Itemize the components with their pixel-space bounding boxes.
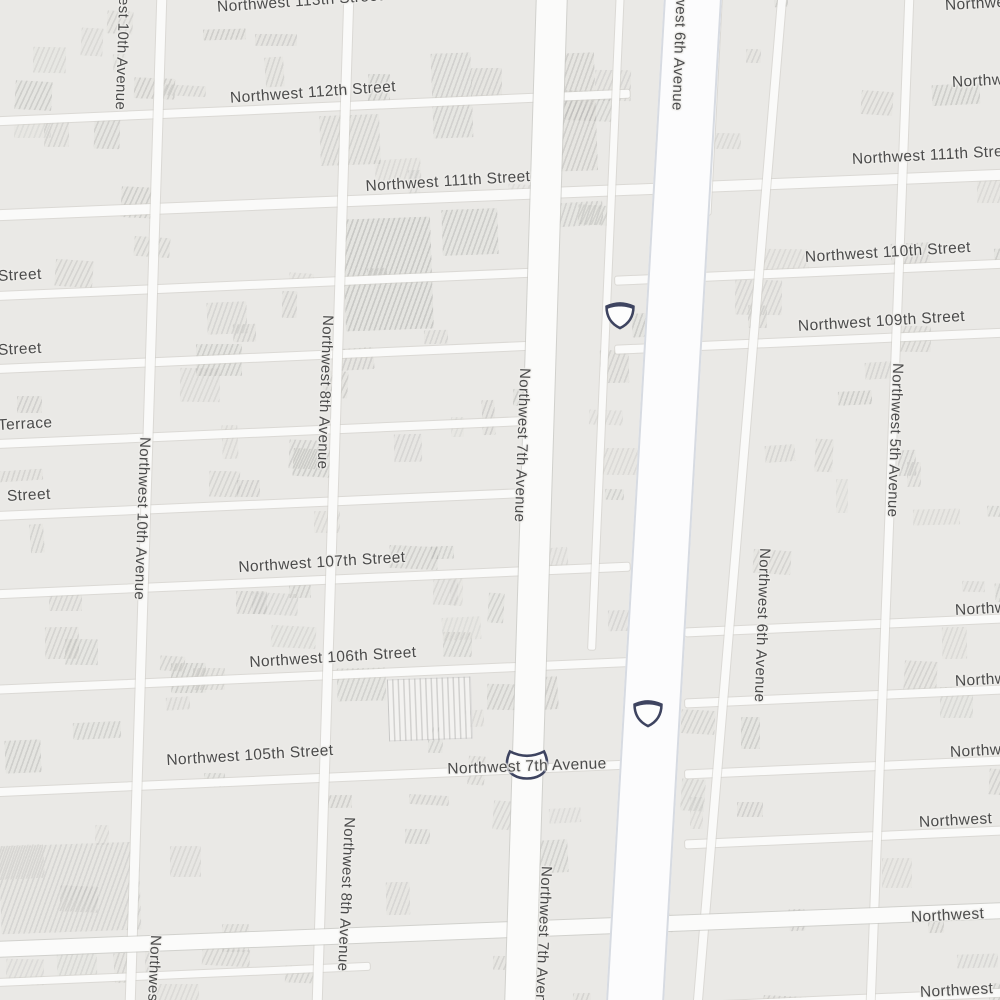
map-label-northwest-105th-street: Northwest 105th Street <box>166 742 334 770</box>
map-label-northwest-110th-street: Northwest 110th Street <box>804 239 971 267</box>
labels-layer: Northwest 113th StreetNorthwest 112th St… <box>0 0 1000 1000</box>
map-label-northwest-111th-street: Northwest 111th Street <box>852 142 1000 169</box>
map-label-northwest-106th-street: Northwest 106th Street <box>249 644 417 672</box>
map-canvas[interactable]: Northwest 113th StreetNorthwest 112th St… <box>0 0 1000 1000</box>
map-label-northwest: Northwest <box>920 980 994 1000</box>
map-label-northwest-109th-street: Northwest 109th Street <box>797 308 965 336</box>
map-label-street: Street <box>0 266 42 286</box>
map-label-northwest-113th-street: Northwest 113th Street <box>216 0 383 17</box>
map-label-northwest-6th-avenue: Northwest 6th Avenue <box>751 548 773 703</box>
map-label-northwest-112th-street: Northwest 112th Street <box>229 78 396 108</box>
map-label-northwest: Northwest <box>955 669 1000 691</box>
map-label-northwest-8th-avenue: Northwest 8th Avenue <box>334 817 358 972</box>
map-label-terrace: Terrace <box>0 414 53 435</box>
map-label-northwest-7th-avenue: Northwest 7th Avenue <box>447 755 607 779</box>
map-label-northwest: Northwest <box>919 810 993 832</box>
map-label-northwest: Northwest <box>950 740 1000 762</box>
map-label-northwest-7th-avenue: Northwest 7th Avenue <box>511 368 533 523</box>
map-label-northwest: Northwest <box>955 598 1000 620</box>
map-label-est-10th-avenue: est 10th Avenue <box>112 0 133 111</box>
map-label-street: Street <box>0 340 42 360</box>
map-label-northwest: Northwest <box>945 0 1000 15</box>
map-label-northwest: Northwest <box>911 905 985 927</box>
map-label-street: Street <box>7 486 52 506</box>
map-label-northwest-10th-avenue: Northwest 10th Avenue <box>131 437 154 601</box>
map-label-west-6th-avenue: west 6th Avenue <box>668 0 689 111</box>
map-label-northwest-111th-street: Northwest 111th Street <box>365 168 531 196</box>
map-label-northwest-10th-avenue: Northwest 10th Avenue <box>140 935 164 1000</box>
map-label-northwest-7th-avenue: Northwest 7th Avenue <box>531 866 555 1000</box>
map-label-northwest-8th-avenue: Northwest 8th Avenue <box>314 315 336 470</box>
map-label-northwest-5th-avenue: Northwest 5th Avenue <box>884 363 906 518</box>
map-label-northwest-107th-street: Northwest 107th Street <box>238 549 406 577</box>
map-label-northwest: Northwest <box>952 70 1000 92</box>
